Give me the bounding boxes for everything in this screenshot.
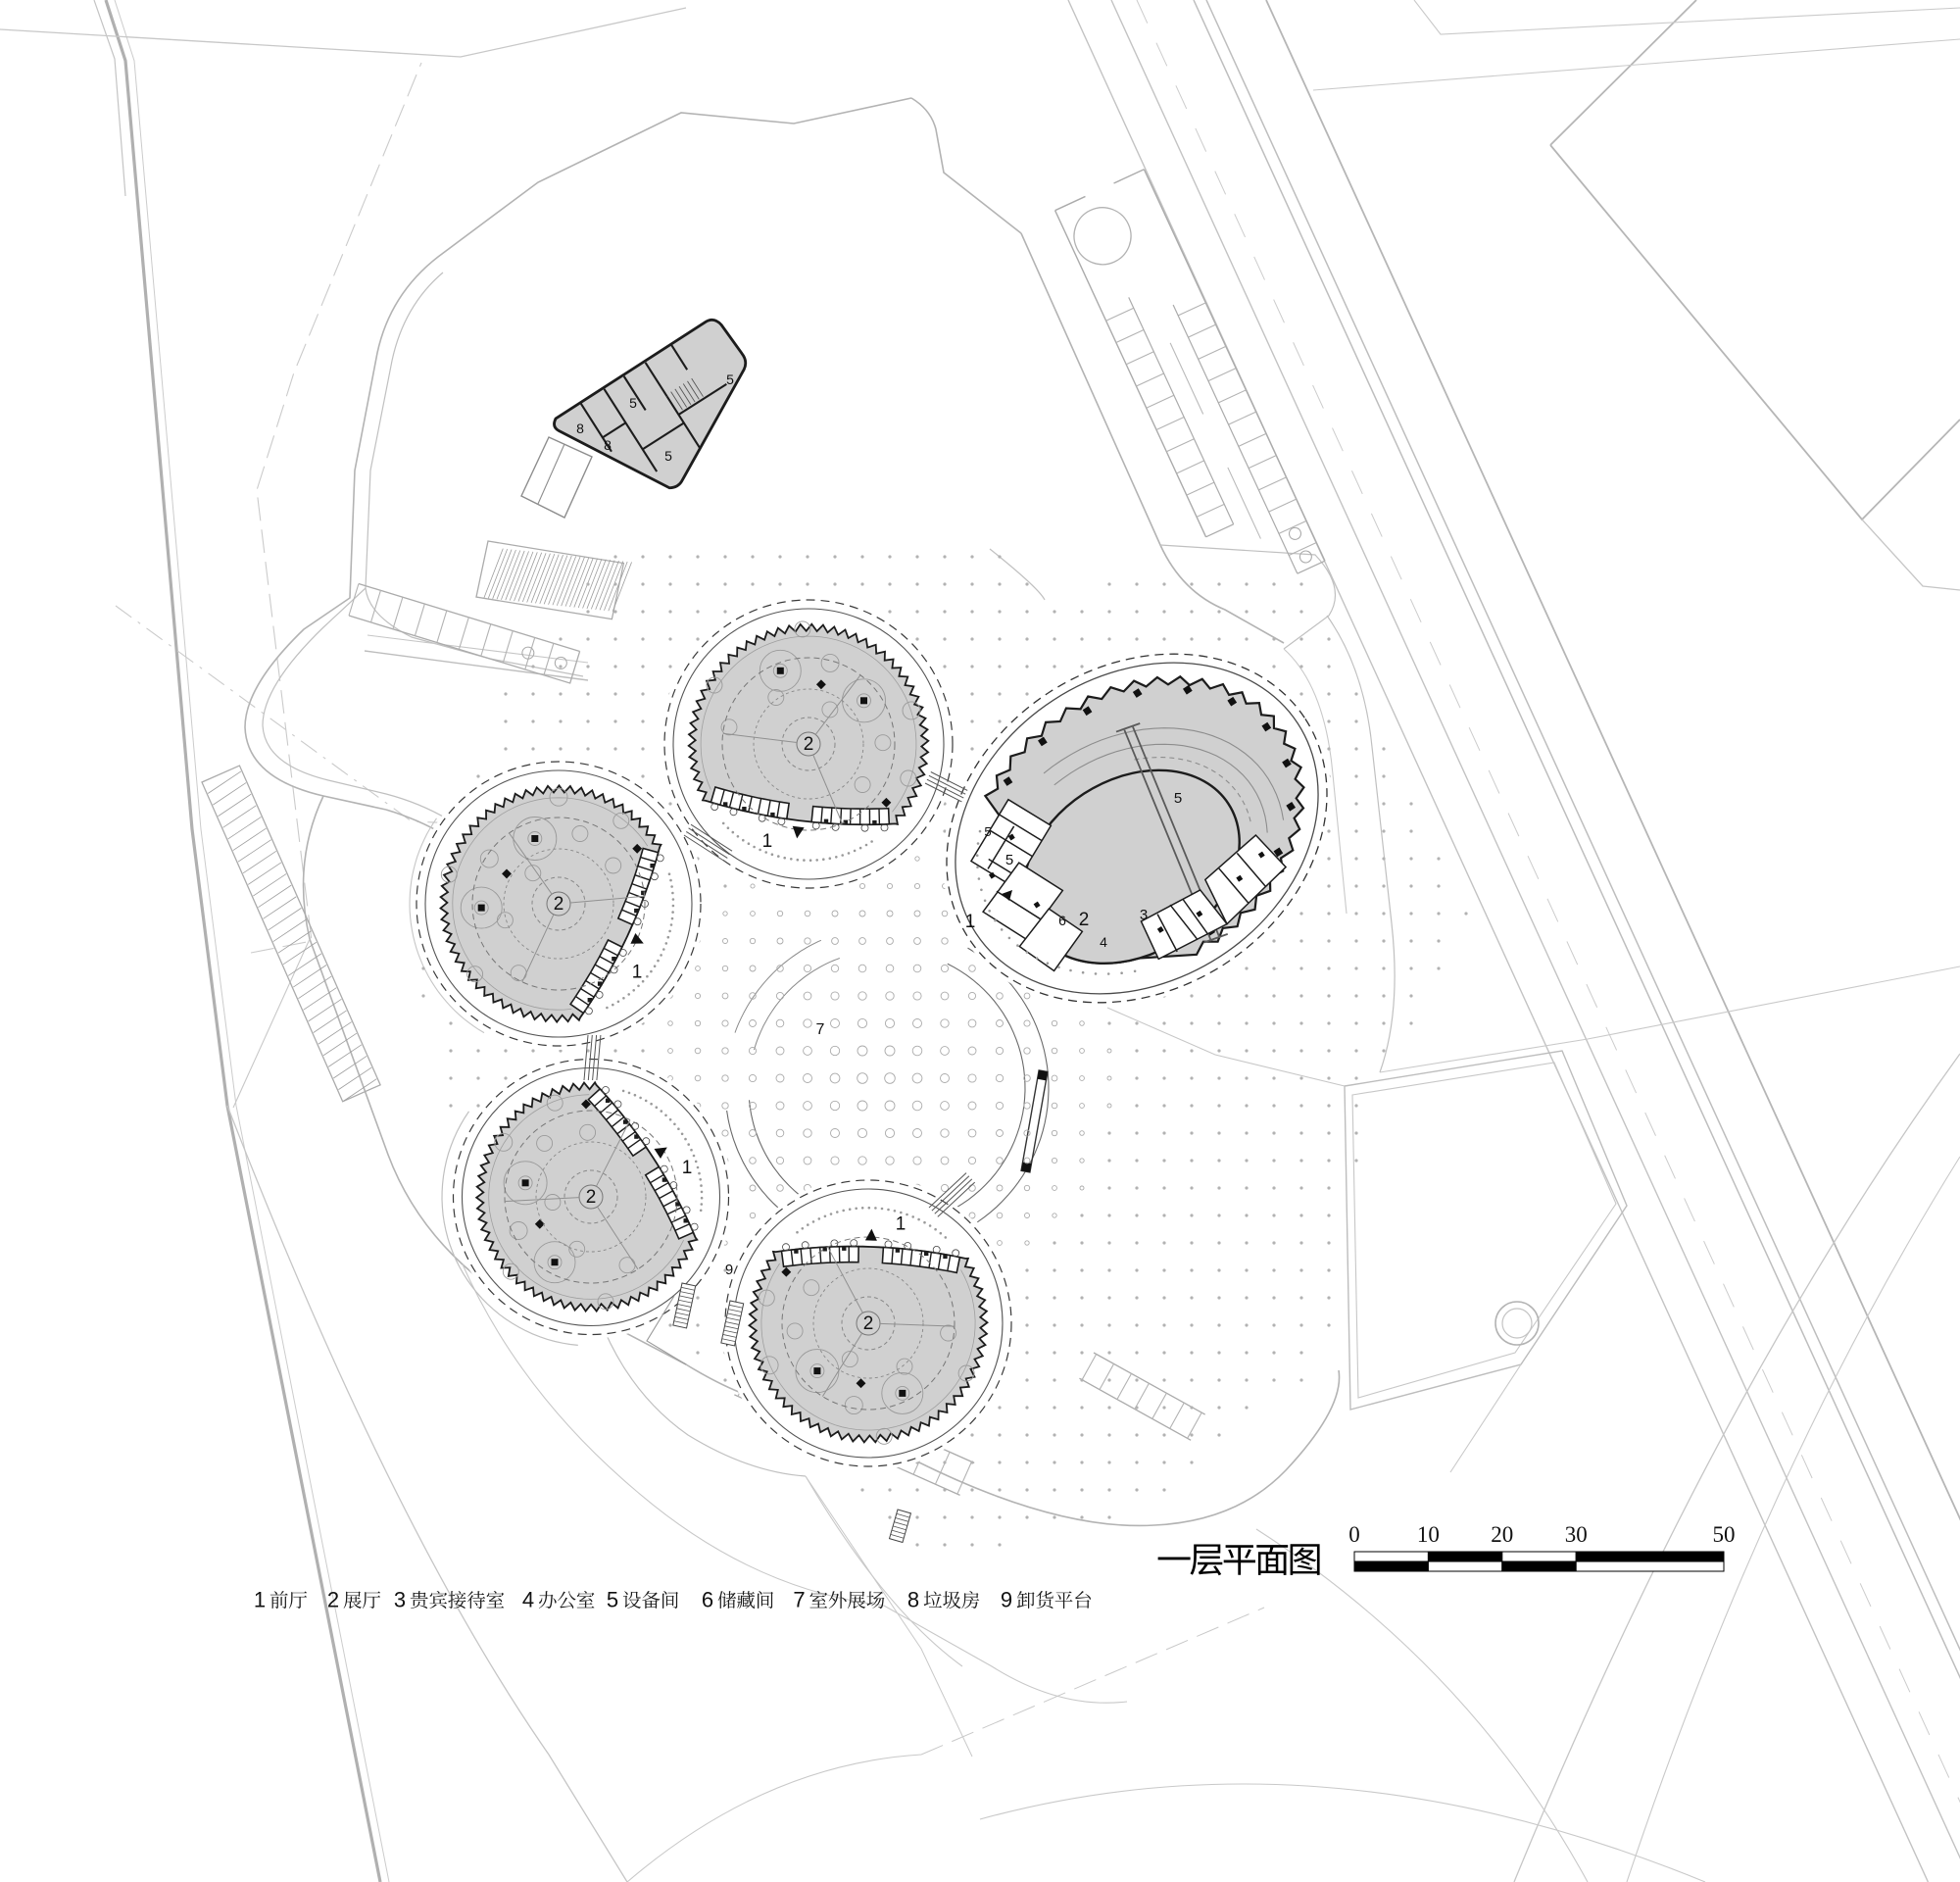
svg-text:1: 1 (682, 1158, 693, 1178)
svg-text:5: 5 (1174, 790, 1182, 807)
svg-text:2: 2 (804, 734, 814, 755)
svg-text:7: 7 (816, 1021, 825, 1038)
svg-text:6: 6 (1058, 913, 1066, 928)
svg-text:7: 7 (793, 1588, 805, 1612)
svg-text:3: 3 (1140, 907, 1148, 923)
svg-text:5: 5 (1005, 852, 1013, 868)
svg-text:3: 3 (394, 1588, 406, 1612)
svg-text:5: 5 (984, 824, 991, 839)
svg-text:2: 2 (1079, 910, 1090, 930)
svg-text:5: 5 (664, 448, 672, 464)
svg-text:1: 1 (632, 963, 643, 983)
svg-text:5: 5 (607, 1588, 618, 1612)
svg-text:2: 2 (327, 1588, 339, 1612)
svg-text:5: 5 (629, 395, 637, 411)
svg-text:9: 9 (1001, 1588, 1012, 1612)
svg-text:30: 30 (1565, 1522, 1588, 1547)
svg-text:1: 1 (965, 912, 976, 932)
svg-text:8: 8 (907, 1588, 919, 1612)
svg-text:1: 1 (762, 831, 773, 852)
svg-text:50: 50 (1713, 1522, 1736, 1547)
svg-text:2: 2 (586, 1187, 597, 1208)
svg-text:8: 8 (604, 437, 612, 453)
svg-text:2: 2 (554, 894, 564, 915)
svg-text:1: 1 (896, 1213, 906, 1234)
svg-text:1: 1 (254, 1588, 266, 1612)
svg-text:4: 4 (522, 1588, 534, 1612)
svg-text:20: 20 (1491, 1522, 1513, 1547)
svg-text:2: 2 (863, 1313, 874, 1334)
svg-text:10: 10 (1417, 1522, 1440, 1547)
svg-text:6: 6 (702, 1588, 713, 1612)
svg-text:4: 4 (1100, 934, 1107, 950)
svg-text:8: 8 (576, 421, 584, 436)
svg-text:5: 5 (726, 371, 734, 387)
svg-text:0: 0 (1348, 1522, 1360, 1547)
svg-text:9: 9 (725, 1262, 733, 1278)
